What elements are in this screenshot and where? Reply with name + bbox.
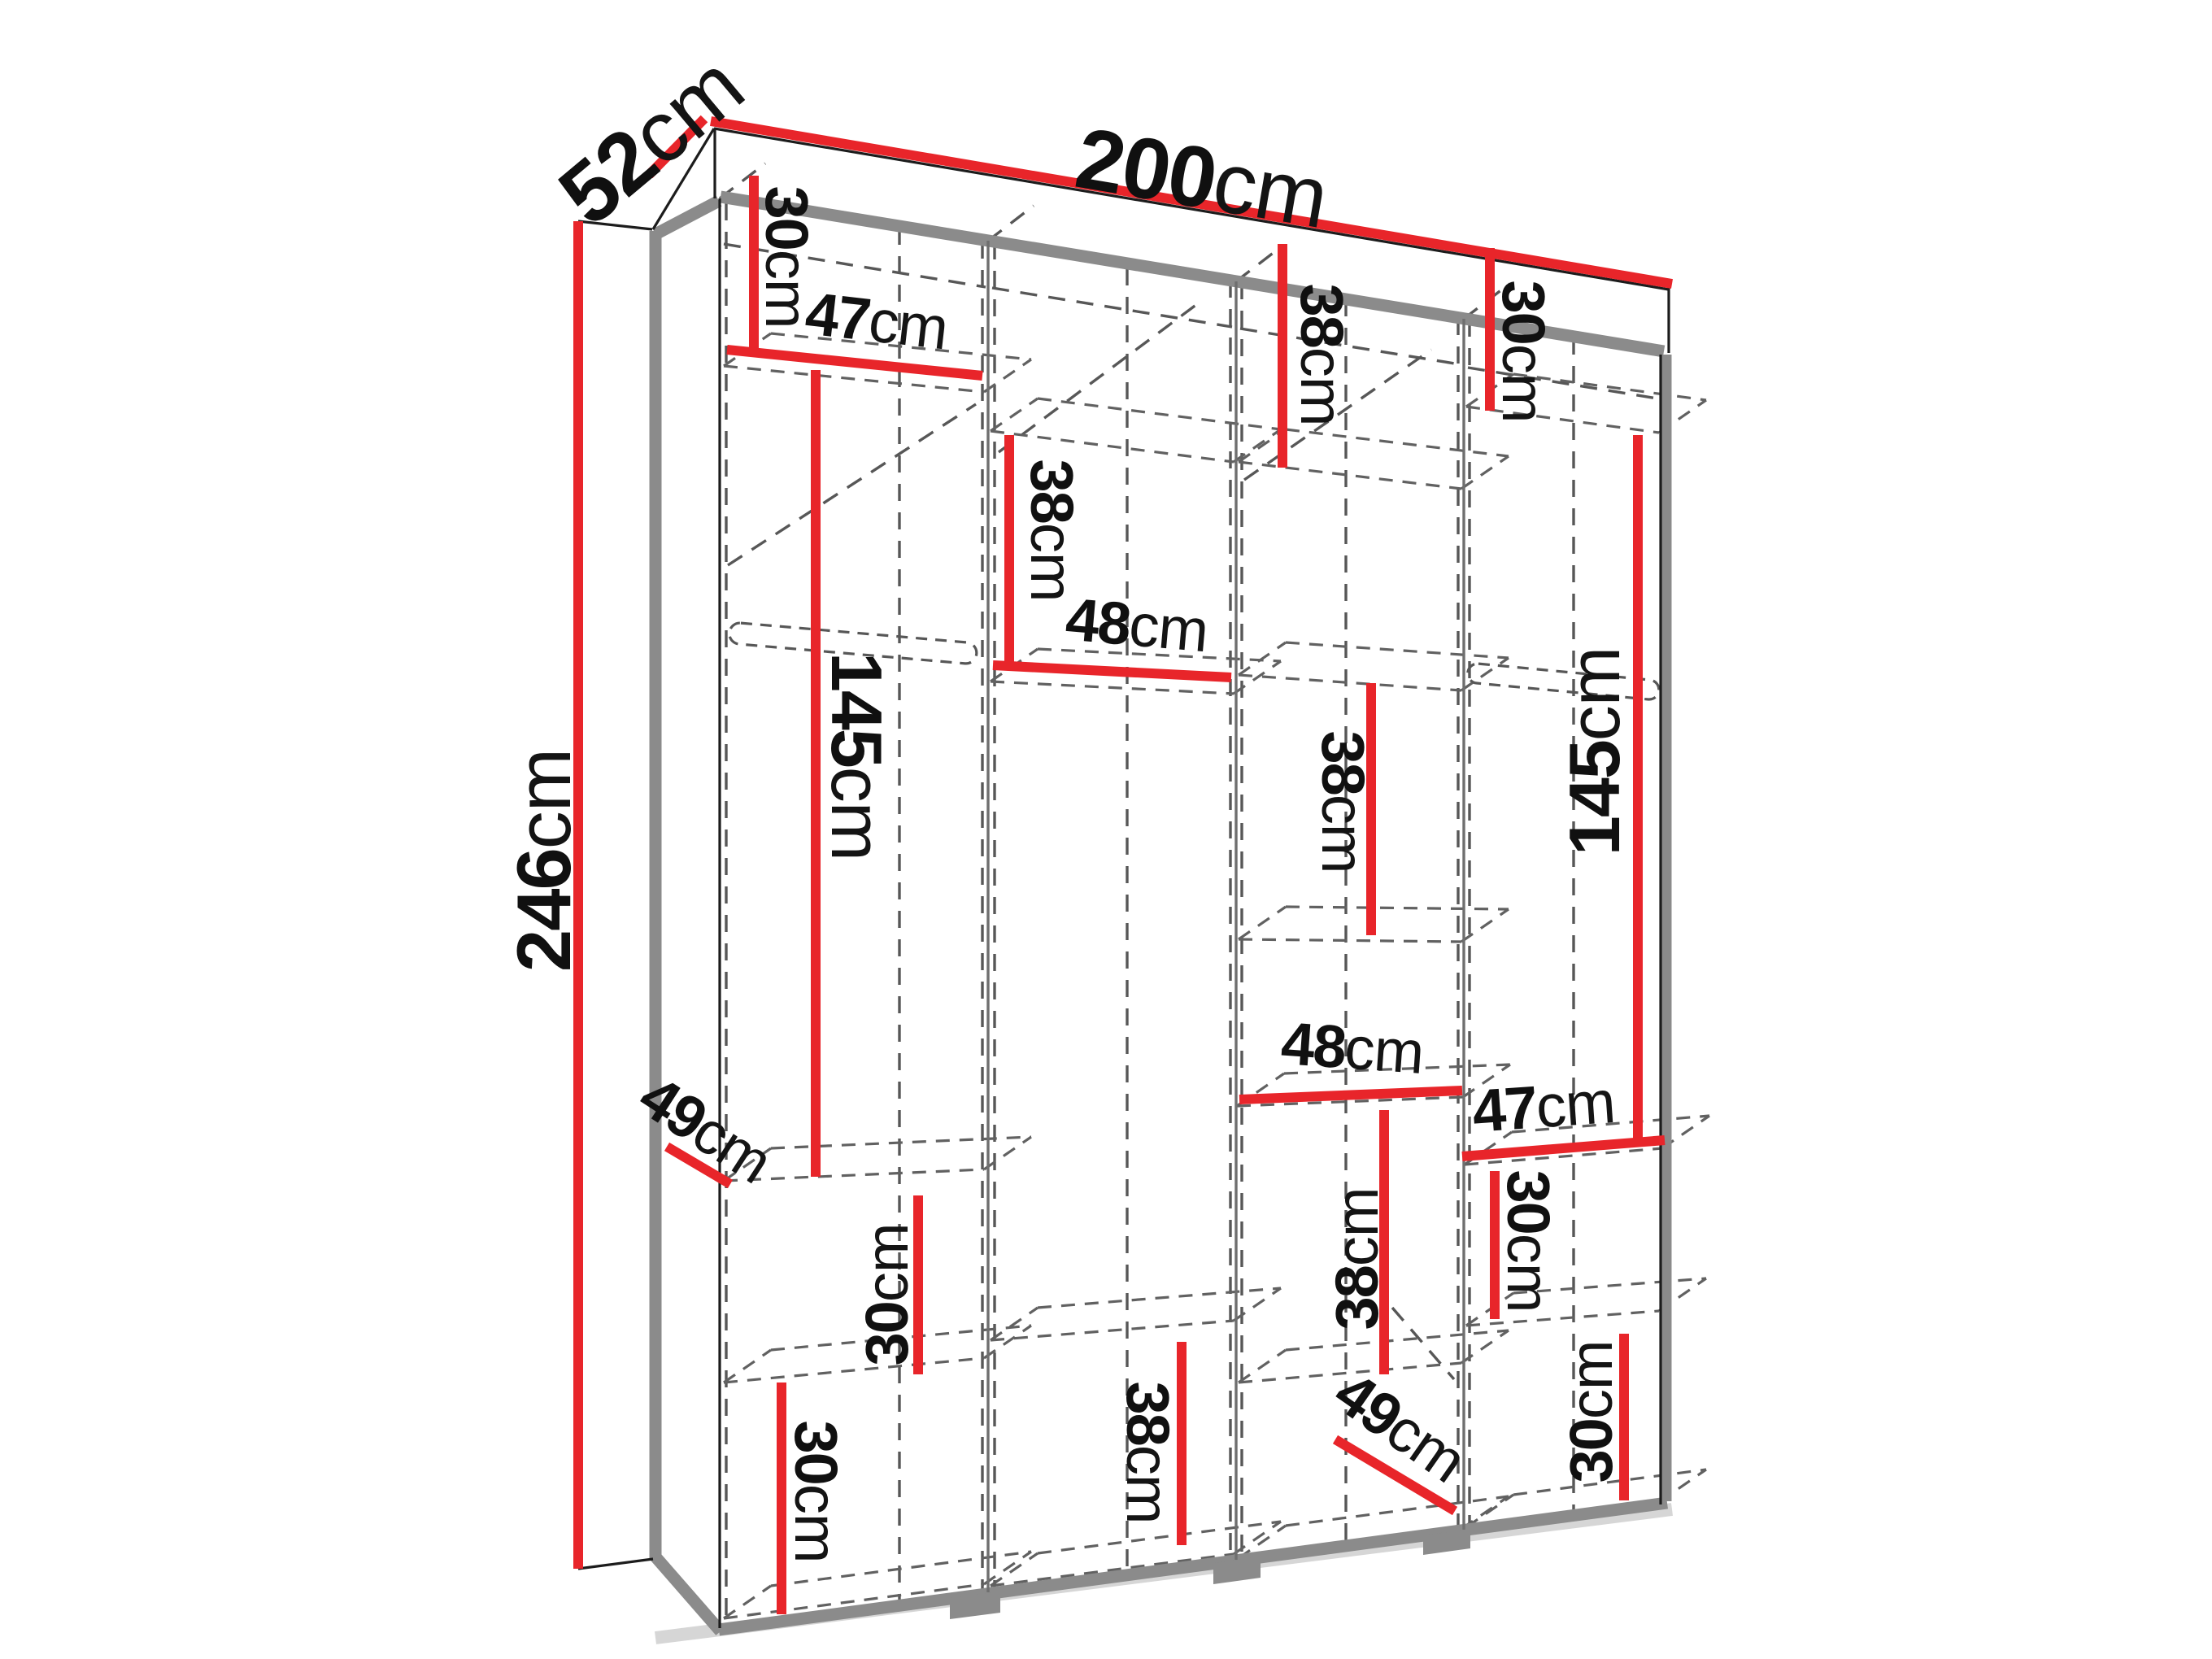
dimension-label-c3-bottom-38: 38cm (1323, 1188, 1391, 1330)
dimension-unit: cm (1323, 1188, 1391, 1267)
dimension-unit: cm (501, 749, 586, 849)
dimension-value: 38 (1114, 1382, 1182, 1445)
dimension-unit: cm (816, 767, 897, 860)
dimension-label-c4-shelf-47: 47cm (1470, 1068, 1617, 1145)
dimension-label-c4-mid-30: 30cm (1495, 1170, 1562, 1313)
dimension-unit: cm (1495, 1234, 1562, 1313)
dimension-unit: cm (1114, 1445, 1182, 1524)
dimension-unit: cm (1557, 1341, 1625, 1420)
dimension-value: 30 (1490, 281, 1557, 344)
dimension-label-c1-bottom-30: 30cm (782, 1421, 850, 1563)
dimension-value: 47 (1470, 1073, 1539, 1145)
dimension-value: 38 (1018, 459, 1086, 523)
dimension-value: 145 (816, 652, 897, 767)
dimension-unit: cm (782, 1484, 850, 1563)
dimension-value: 30 (853, 1302, 921, 1365)
dimension-label-c1-mid-30: 30cm (853, 1224, 921, 1366)
dimension-value: 30 (1557, 1419, 1625, 1483)
dimension-label-c1-hang-145: 145cm (816, 652, 897, 860)
dimension-value: 48 (1279, 1009, 1348, 1081)
dimension-value: 48 (1063, 585, 1132, 658)
dimension-label-c2-shelf-48: 48cm (1063, 585, 1211, 664)
dimension-label-c1-top-30: 30cm (753, 186, 821, 329)
dimension-label-c3-shelf-48: 48cm (1279, 1009, 1426, 1086)
dimension-value: 38 (1288, 284, 1356, 347)
dimension-unit: cm (865, 286, 951, 362)
dimension-value: 38 (1309, 731, 1377, 795)
dimension-unit: cm (1288, 347, 1356, 426)
dimension-label-c2-top-38: 38cm (1018, 459, 1086, 602)
dimension-unit: cm (1126, 590, 1211, 664)
dimension-label-c3-top-38: 38cm (1288, 284, 1356, 426)
dimension-value: 246 (501, 849, 586, 972)
dimension-unit: cm (1534, 1068, 1617, 1141)
dimension-unit: cm (853, 1224, 921, 1303)
dimension-label-c2-bottom-38: 38cm (1114, 1382, 1182, 1524)
dimension-label-height-246: 246cm (501, 749, 586, 972)
dimension-unit: cm (1554, 647, 1635, 741)
background (0, 0, 2212, 1659)
dimension-unit: cm (753, 250, 821, 329)
dimension-value: 30 (753, 186, 821, 250)
dimension-value: 38 (1323, 1266, 1391, 1330)
dimension-unit: cm (1207, 133, 1335, 247)
dimension-label-c3-mid-38: 38cm (1309, 731, 1377, 873)
dimension-value: 30 (782, 1421, 850, 1484)
dimension-label-c4-hang-145: 145cm (1554, 647, 1635, 856)
dimension-unit: cm (1490, 344, 1557, 423)
dimension-value: 30 (1495, 1170, 1562, 1234)
dimension-unit: cm (1309, 795, 1377, 873)
dimension-label-c4-top-30: 30cm (1490, 281, 1557, 423)
dimension-value: 145 (1554, 741, 1635, 856)
dimension-label-c4-bottom-30: 30cm (1557, 1341, 1625, 1483)
diagram-canvas: 200cm52cm246cm47cm30cm145cm49cm30cm30cm3… (0, 0, 2212, 1659)
wardrobe-dimension-diagram: 200cm52cm246cm47cm30cm145cm49cm30cm30cm3… (0, 0, 2212, 1659)
dimension-unit: cm (1343, 1013, 1426, 1086)
